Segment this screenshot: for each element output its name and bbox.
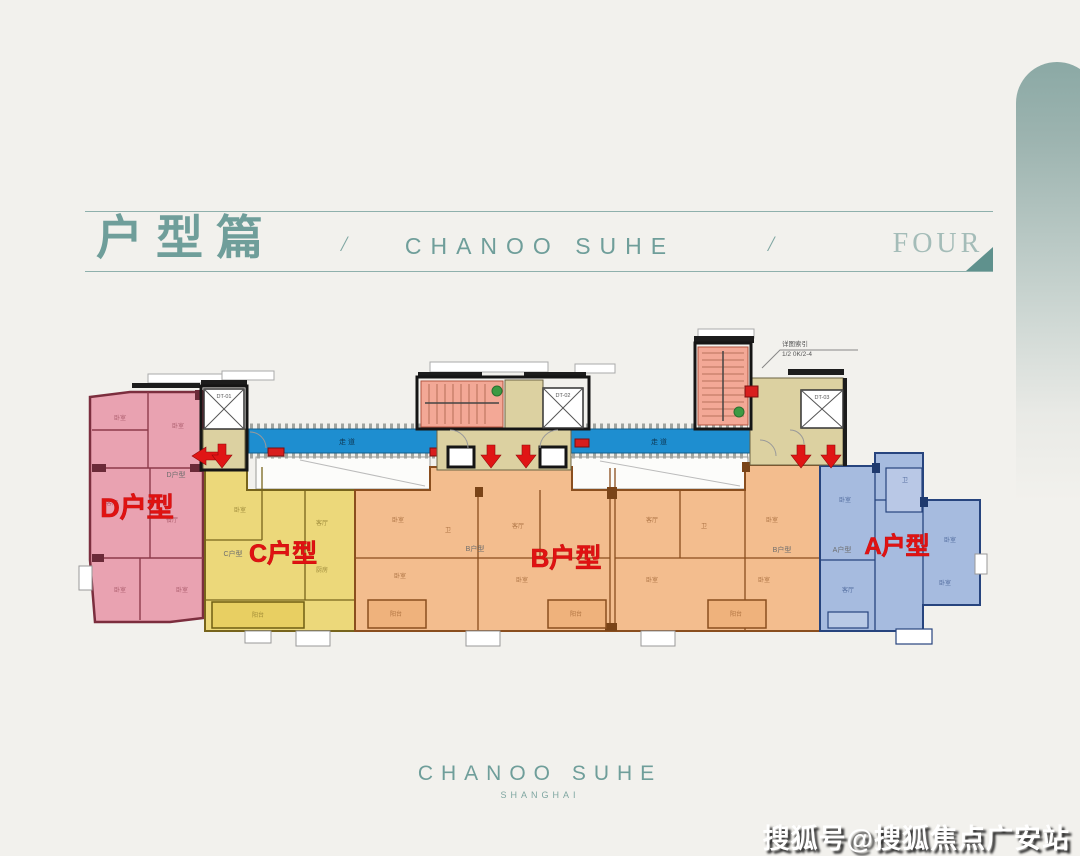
unit-a-label: A户型 — [864, 532, 929, 560]
footer-subtitle: SHANGHAI — [0, 790, 1080, 800]
watermark: 搜狐号@搜狐焦点广安站 — [763, 817, 1070, 856]
room-mark: 阳台 — [730, 610, 742, 618]
room-mark: 卧室 — [176, 586, 188, 594]
unit-a-small-label: A户型 — [833, 545, 852, 554]
green-dot-marker — [734, 407, 744, 417]
balcony-box — [896, 629, 932, 644]
unit-d-small-label: D户型 — [166, 470, 185, 479]
balcony-box — [296, 631, 675, 646]
room-mark: 卧室 — [234, 506, 246, 514]
room-mark: 卧室 — [766, 516, 778, 524]
footer-brand: CHANOO SUHE — [0, 762, 1080, 786]
room-mark: 客厅 — [646, 516, 658, 524]
room-mark: 卧室 — [839, 496, 851, 504]
room-mark: 卫 — [902, 477, 908, 484]
balcony-box — [79, 566, 92, 590]
unit-b-label: B户型 — [531, 543, 602, 573]
unit-b-small-label-2: B户型 — [773, 545, 792, 554]
elevator-label-1: DT-01 — [217, 394, 232, 400]
room-mark: 卫 — [701, 523, 707, 530]
room-mark: 客厅 — [842, 586, 854, 594]
green-dot-marker — [492, 386, 502, 396]
corridor-label-2: 走道 — [651, 437, 669, 446]
unit-c-small-label: C户型 — [223, 549, 242, 558]
room-mark: 卧室 — [758, 576, 770, 584]
elevator-label-3: DT-03 — [815, 395, 830, 401]
unit-b-small-label: B户型 — [466, 544, 485, 553]
balcony-box — [245, 631, 271, 643]
corridor-label: 走道 — [339, 437, 357, 446]
room-mark: 卧室 — [392, 516, 404, 524]
room-mark: 卧室 — [114, 414, 126, 422]
room-mark: 厨房 — [316, 566, 328, 574]
elevator-label-2: DT-02 — [556, 393, 571, 399]
annotation-line-1: 详图索引 — [782, 339, 808, 348]
room-mark: 阳台 — [570, 610, 582, 618]
core-middle: DT-02 — [417, 372, 589, 470]
room-mark: 客厅 — [316, 519, 328, 527]
floorplan-svg: 走道 走道 DT-01 DT — [0, 0, 1080, 855]
red-box-marker — [745, 386, 758, 397]
room-mark: 阳台 — [252, 611, 264, 619]
room-mark: 阳台 — [390, 610, 402, 618]
room-mark: 卧室 — [114, 586, 126, 594]
annotation-line-2: 1/2 0K/2-4 — [782, 351, 812, 358]
room-mark: 卧室 — [646, 576, 658, 584]
room-mark: 卫 — [445, 527, 451, 534]
room-mark: 卧室 — [516, 576, 528, 584]
room-mark: 卧室 — [394, 572, 406, 580]
room-mark: 卧室 — [944, 536, 956, 544]
room-mark: 卧室 — [939, 579, 951, 587]
room-mark: 卧室 — [172, 422, 184, 430]
room-mark: 客厅 — [512, 522, 524, 530]
unit-d-label: D户型 — [100, 492, 174, 523]
unit-c-label: C户型 — [249, 539, 317, 568]
